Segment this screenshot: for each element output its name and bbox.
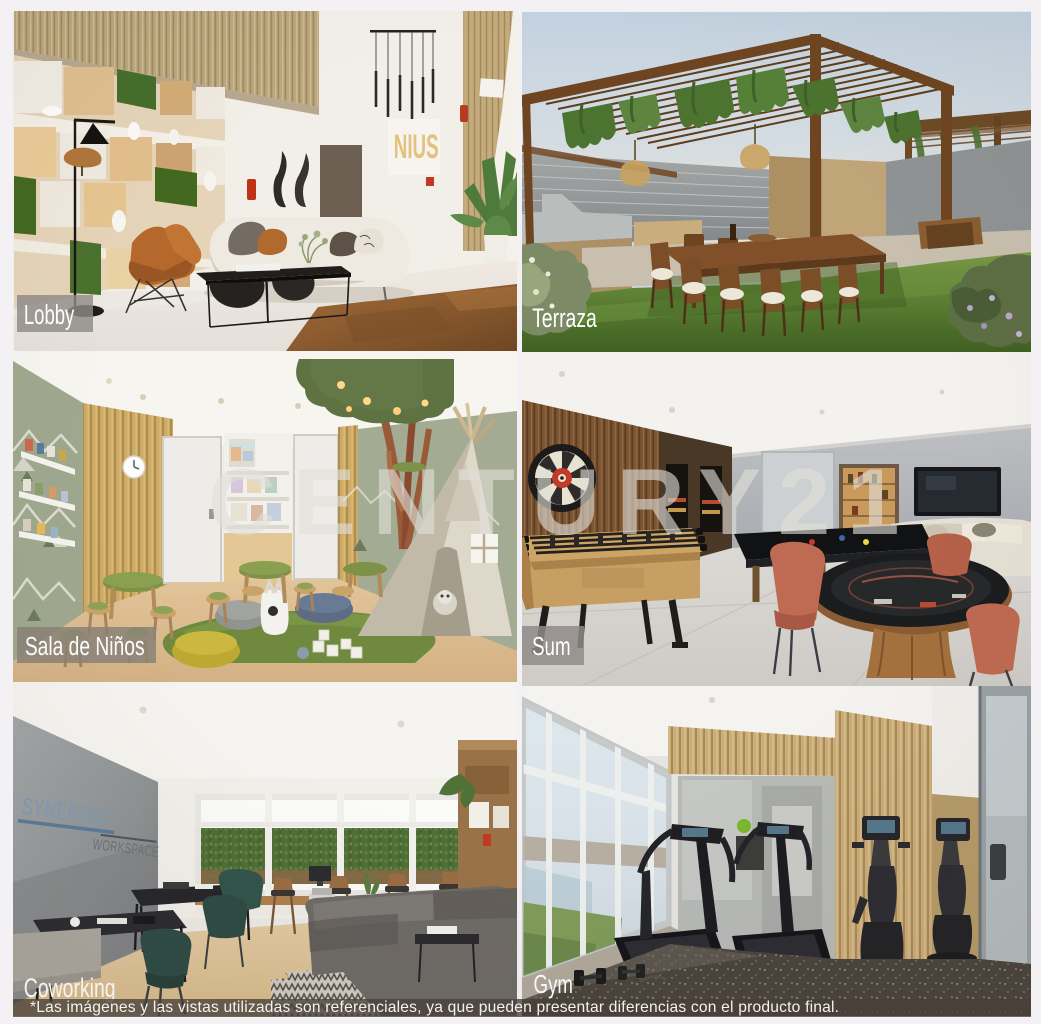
svg-text:Lobby: Lobby xyxy=(24,300,74,331)
svg-text:Sala de Niños: Sala de Niños xyxy=(25,631,145,661)
svg-text:Terraza: Terraza xyxy=(532,303,598,333)
svg-text:NIUS: NIUS xyxy=(394,127,439,165)
svg-text:Gym: Gym xyxy=(534,969,573,999)
svg-text:Sum: Sum xyxy=(532,631,570,661)
